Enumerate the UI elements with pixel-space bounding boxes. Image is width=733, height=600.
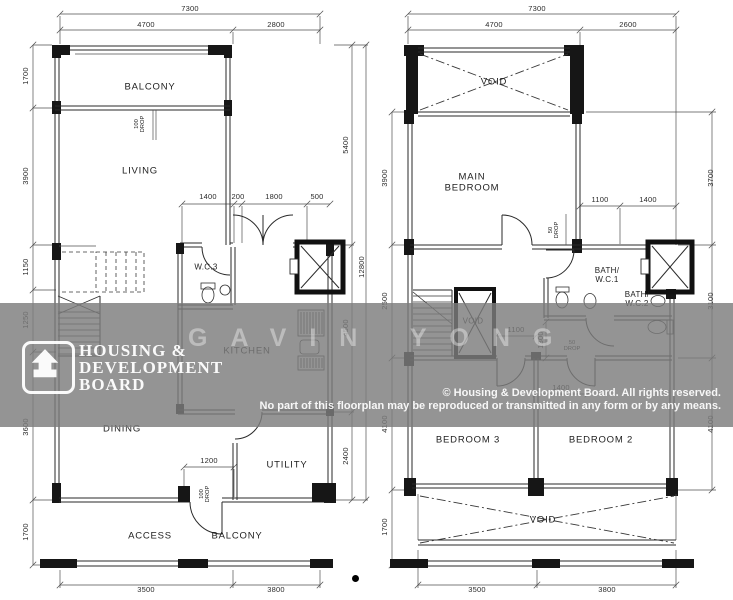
dim-upper-bath-1: 1100	[592, 196, 609, 204]
dim-lower-kitchen-3: 1800	[265, 193, 283, 201]
ghost-watermark-text: GAVIN YONG	[188, 324, 575, 353]
dim-lower-right-3: 2400	[342, 447, 350, 465]
upper-dimension-lines	[389, 11, 716, 588]
upper-floor-plan	[389, 11, 716, 588]
room-label-void-bottom: VOID	[530, 516, 556, 527]
dim-lower-kitchen-1: 1400	[199, 193, 217, 201]
room-label-balcony-top: BALCONY	[124, 83, 175, 94]
drop-label-living: 100 DROP	[134, 116, 146, 133]
dim-lower-left-6: 1700	[22, 523, 30, 541]
copyright-line1: © Housing & Development Board. All right…	[443, 387, 721, 399]
dim-lower-top-right: 2800	[267, 21, 285, 29]
room-label-living: LIVING	[122, 167, 158, 178]
drop-label-access: 100 DROP	[199, 486, 211, 503]
dim-lower-kitchen-2: 200	[231, 193, 244, 201]
room-label-access: ACCESS	[128, 532, 172, 543]
dim-upper-left-4: 1700	[381, 518, 389, 536]
copyright-line2: No part of this floorplan may be reprodu…	[260, 400, 721, 412]
dim-lower-bottom-2: 3800	[267, 586, 285, 594]
floorplan-page: 7300 4700 2800 BALCONY 100 DROP LIVING 1…	[0, 0, 733, 600]
hdb-logo	[22, 341, 75, 394]
dim-upper-bath-2: 1400	[639, 196, 657, 204]
dim-lower-bottom-1: 3500	[137, 586, 155, 594]
dim-lower-left-1: 1700	[22, 67, 30, 85]
dim-lower-left-2: 3900	[22, 167, 30, 185]
room-label-void-top: VOID	[481, 78, 507, 89]
dim-upper-top-total: 7300	[528, 5, 546, 13]
room-label-bath-wc1: BATH/ W.C.1	[595, 267, 619, 285]
drop-label-bedroom: 50 DROP	[548, 222, 560, 239]
dim-lower-right-1: 5400	[342, 136, 350, 154]
room-label-bedroom3: BEDROOM 3	[436, 436, 500, 447]
dim-lower-left-3: 1150	[22, 259, 30, 276]
room-label-wc3: W.C.3	[194, 264, 217, 273]
lower-lift-shaft	[290, 242, 343, 292]
dim-lower-top-total: 7300	[181, 5, 199, 13]
dim-upper-bottom-2: 3800	[598, 586, 616, 594]
room-label-balcony-bottom: BALCONY	[211, 532, 262, 543]
dim-upper-bottom-1: 3500	[468, 586, 486, 594]
upper-lift-shaft	[641, 242, 692, 292]
dim-lower-kitchen-4: 500	[310, 193, 323, 201]
dim-lower-utility-door: 1200	[200, 457, 218, 465]
floorplan-linework	[0, 0, 733, 600]
dim-upper-left-1: 3900	[381, 169, 389, 187]
page-marker-dot	[352, 575, 359, 582]
hdb-logo-text-line3: BOARD	[79, 375, 145, 395]
dim-lower-top-left: 4700	[137, 21, 155, 29]
dim-upper-top-left: 4700	[485, 21, 503, 29]
dim-upper-top-right: 2600	[619, 21, 637, 29]
hdb-logo-arrow-icon	[25, 344, 65, 384]
room-label-utility: UTILITY	[267, 461, 308, 472]
room-label-main-bedroom: MAIN BEDROOM	[445, 172, 500, 193]
dim-lower-right-total: 12800	[358, 256, 366, 278]
dim-upper-right-1: 3700	[707, 169, 715, 187]
room-label-bedroom2: BEDROOM 2	[569, 436, 633, 447]
